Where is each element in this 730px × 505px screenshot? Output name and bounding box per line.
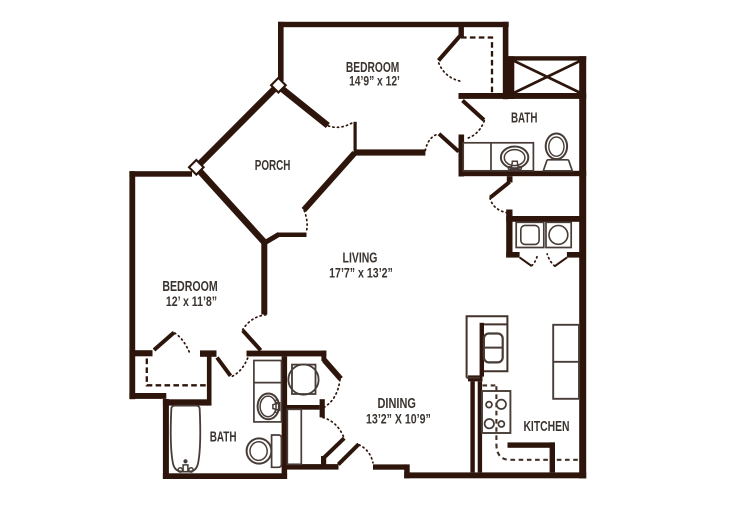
svg-text:PORCH: PORCH — [255, 158, 291, 174]
svg-text:13’2” X 10’9”: 13’2” X 10’9” — [366, 411, 431, 426]
svg-text:BATH: BATH — [210, 429, 237, 445]
svg-text:BATH: BATH — [511, 111, 538, 127]
svg-text:LIVING: LIVING — [343, 251, 378, 267]
svg-text:12’ x 11’8”: 12’ x 11’8” — [166, 294, 217, 309]
svg-text:BEDROOM: BEDROOM — [162, 279, 217, 295]
svg-text:DINING: DINING — [378, 396, 416, 412]
svg-text:17’7” x 13’2”: 17’7” x 13’2” — [329, 266, 393, 281]
svg-text:KITCHEN: KITCHEN — [523, 419, 569, 435]
svg-text:14’9” x 12’: 14’9” x 12’ — [349, 74, 400, 89]
